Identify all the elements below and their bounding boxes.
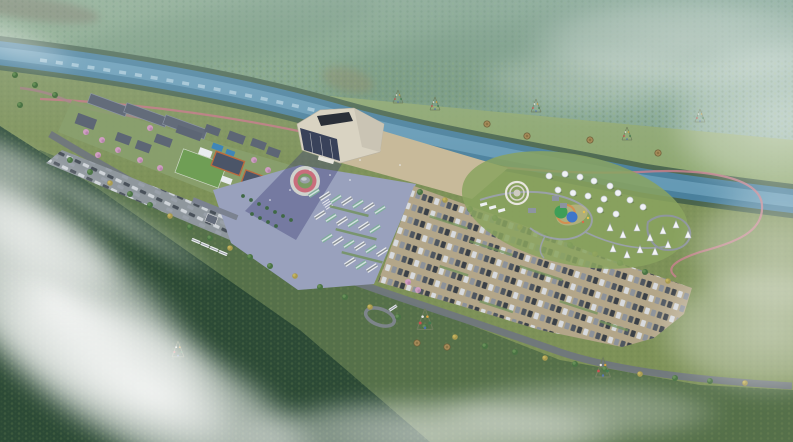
blossom-tree [251, 157, 257, 163]
thatched-hut [587, 137, 593, 143]
service-cabin [528, 208, 536, 213]
blossom-tree [147, 125, 153, 131]
landmark-rock-highlight [301, 177, 307, 181]
blossom-tree [265, 167, 271, 173]
tree [52, 92, 58, 98]
blossom-tree [137, 157, 143, 163]
blossom-tree [99, 137, 105, 143]
thatched-hut [484, 121, 490, 127]
blossom-tree [405, 279, 411, 285]
thatched-hut [414, 340, 420, 346]
thatched-hut [444, 344, 450, 350]
thatched-hut [655, 150, 661, 156]
cloud [470, 45, 730, 115]
thatched-hut [524, 133, 530, 139]
blossom-tree [95, 152, 101, 158]
scene-canvas [0, 0, 793, 442]
service-cabin [552, 196, 559, 201]
mandala-plaza-center [514, 190, 521, 197]
blossom-tree [83, 129, 89, 135]
blossom-tree [115, 147, 121, 153]
blossom-tree [157, 165, 163, 171]
aerial-rendering [0, 0, 793, 442]
service-cabin [560, 203, 567, 208]
playground-blue [567, 212, 578, 223]
tree [12, 72, 18, 78]
tree [17, 102, 23, 108]
tree [32, 82, 38, 88]
blossom-tree [415, 287, 421, 293]
